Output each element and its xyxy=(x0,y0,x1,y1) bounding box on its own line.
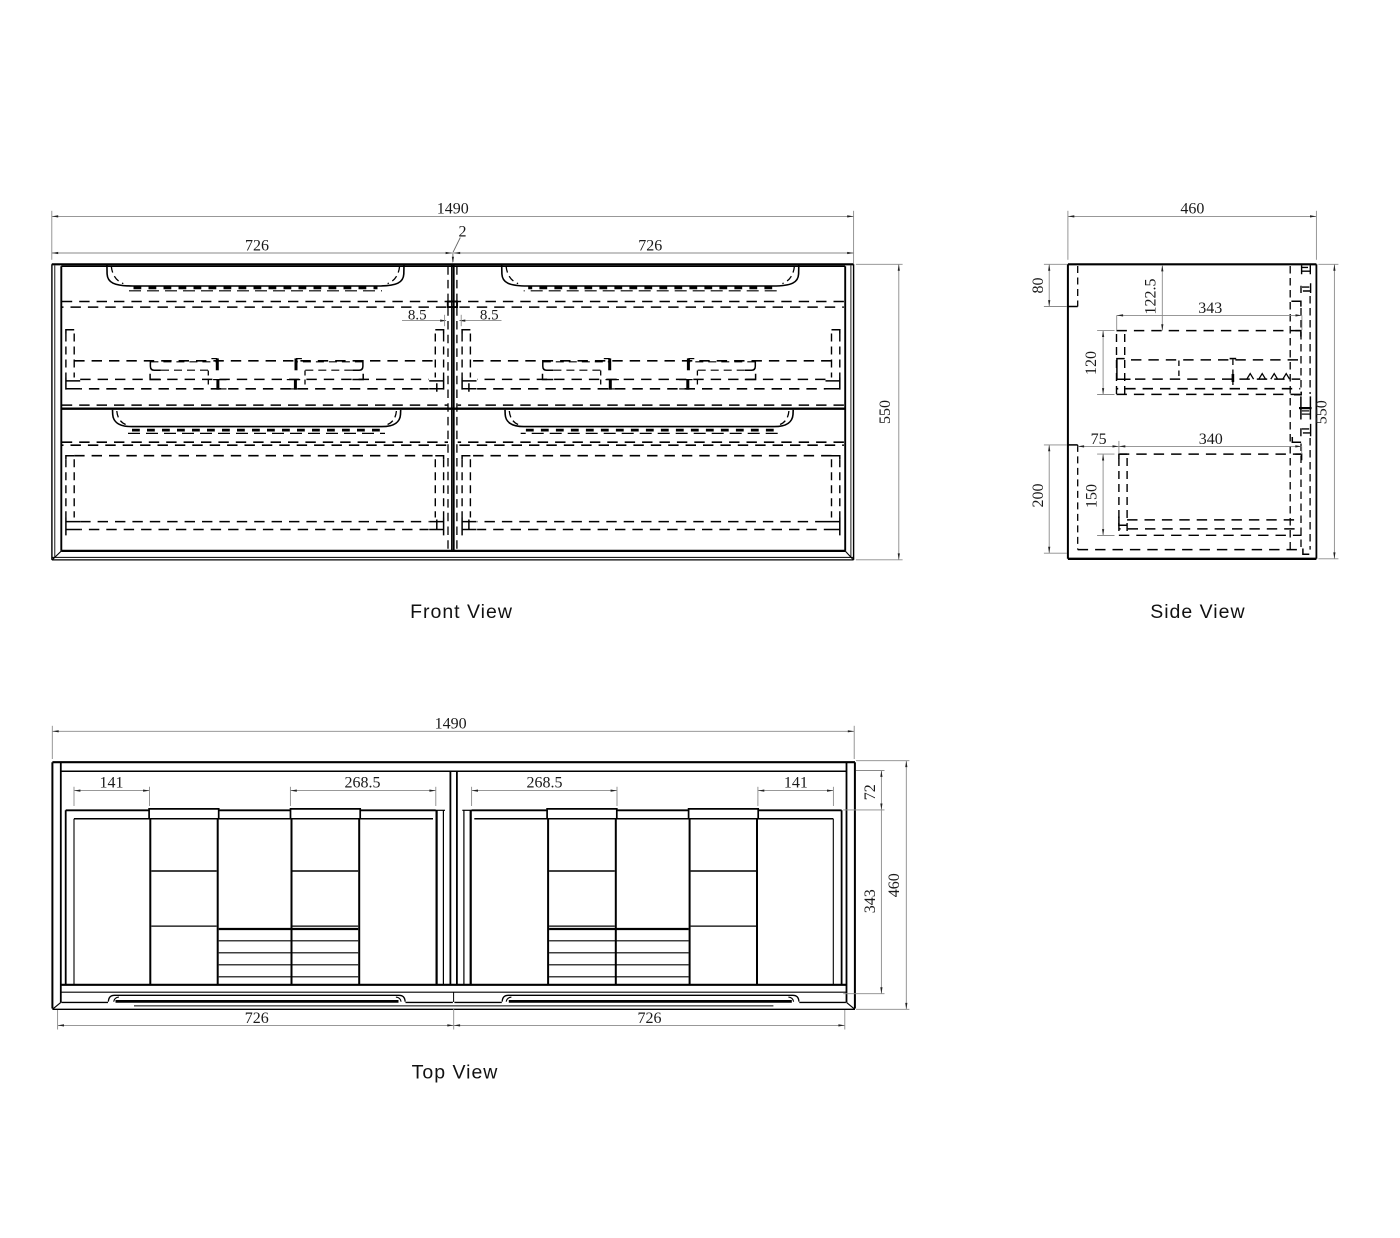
svg-text:Side View: Side View xyxy=(1150,601,1245,623)
svg-text:80: 80 xyxy=(1030,278,1047,294)
svg-text:141: 141 xyxy=(784,775,808,792)
svg-text:726: 726 xyxy=(638,1010,662,1027)
svg-text:726: 726 xyxy=(245,1010,269,1027)
svg-text:550: 550 xyxy=(1314,400,1331,424)
svg-text:460: 460 xyxy=(1180,201,1204,218)
svg-text:343: 343 xyxy=(1198,300,1222,317)
svg-text:8.5: 8.5 xyxy=(408,307,427,323)
svg-text:Front View: Front View xyxy=(410,601,513,623)
svg-text:460: 460 xyxy=(886,873,903,897)
svg-text:268.5: 268.5 xyxy=(527,775,563,792)
svg-text:120: 120 xyxy=(1083,351,1100,375)
svg-text:550: 550 xyxy=(877,400,894,424)
svg-text:75: 75 xyxy=(1091,431,1107,448)
svg-text:141: 141 xyxy=(100,775,124,792)
svg-text:Top View: Top View xyxy=(412,1062,499,1084)
svg-text:8.5: 8.5 xyxy=(480,307,499,323)
svg-text:726: 726 xyxy=(245,238,269,255)
svg-text:268.5: 268.5 xyxy=(345,775,381,792)
svg-text:1490: 1490 xyxy=(437,201,469,218)
svg-text:340: 340 xyxy=(1199,431,1223,448)
svg-text:1490: 1490 xyxy=(435,716,467,733)
svg-text:122.5: 122.5 xyxy=(1143,279,1160,315)
svg-text:72: 72 xyxy=(862,784,879,800)
svg-text:150: 150 xyxy=(1083,484,1100,508)
svg-text:200: 200 xyxy=(1030,484,1047,508)
svg-text:726: 726 xyxy=(638,238,662,255)
svg-text:343: 343 xyxy=(862,889,879,913)
